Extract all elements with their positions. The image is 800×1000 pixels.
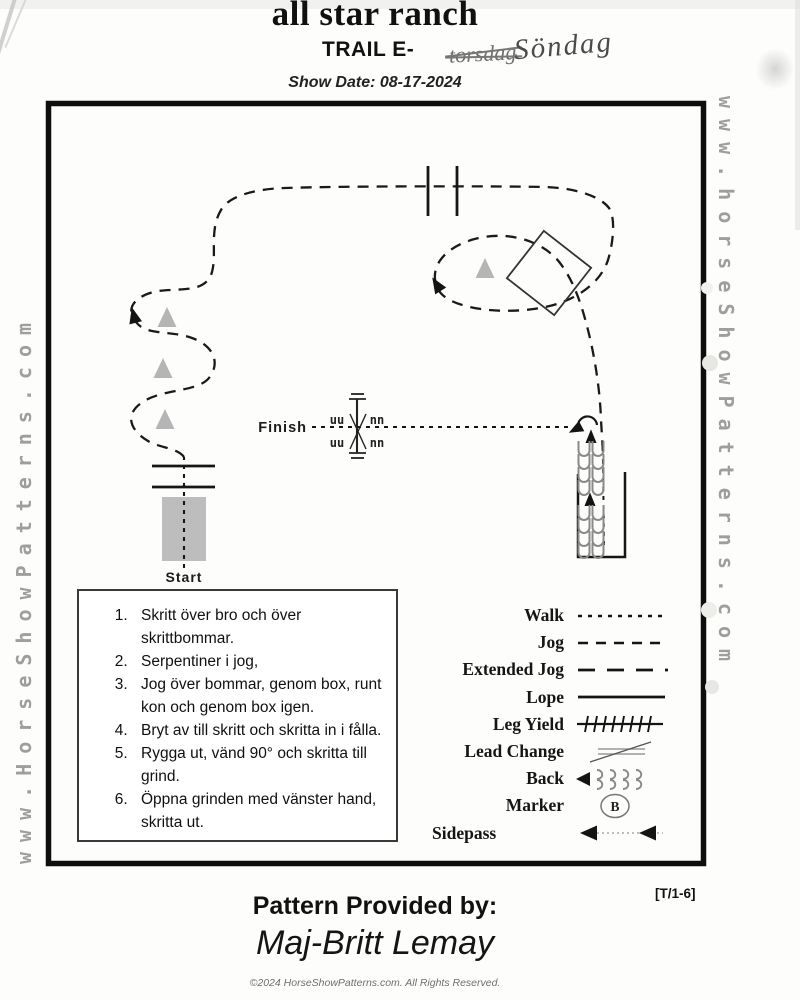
crosshatch-line-icon	[573, 713, 673, 735]
instructions-box: Skritt över bro och över skrittbommar. S…	[77, 589, 398, 842]
instruction-item: Bryt av till skritt och skritta in i fål…	[132, 719, 385, 742]
slash-over-lines-icon	[573, 741, 673, 763]
back-hoofprints	[579, 429, 604, 558]
gate-hoofmarks: nn	[370, 413, 384, 427]
instruction-item: Skritt över bro och över skrittbommar.	[132, 604, 385, 650]
direction-arrow	[427, 274, 447, 294]
legend-row-sidepass: Sidepass	[432, 820, 682, 847]
pattern-sheet: all star ranch TRAIL E- torsdag Söndag S…	[0, 0, 800, 1000]
provided-by-name: Maj-Britt Lemay	[256, 924, 494, 963]
box-obstacle	[507, 231, 591, 315]
legend-label: Back	[432, 768, 564, 789]
lettered-circle-icon: B	[573, 793, 673, 819]
direction-arrow	[126, 306, 142, 325]
solid-line-icon	[573, 686, 673, 708]
legend-row-jog: Jog	[432, 629, 682, 656]
instruction-item: Rygga ut, vänd 90° och skritta till grin…	[132, 742, 385, 788]
gate-hoofmarks: uu	[330, 436, 344, 450]
legend-label: Extended Jog	[432, 659, 564, 680]
legend-row-lead-change: Lead Change	[432, 738, 682, 765]
copyright: ©2024 HorseShowPatterns.com. All Rights …	[250, 977, 501, 989]
legend-row-leg-yield: Leg Yield	[432, 711, 682, 738]
instruction-item: Serpentiner i jog,	[132, 650, 385, 673]
course-diagram: uu nn uu nn Start Finish	[0, 0, 800, 1000]
legend-label: Sidepass	[432, 823, 496, 844]
marker-letter: B	[610, 799, 619, 814]
pattern-code: [T/1-6]	[655, 886, 696, 901]
legend-label: Jog	[432, 632, 564, 653]
instruction-list: Skritt över bro och över skrittbommar. S…	[79, 604, 386, 834]
legend-row-lope: Lope	[432, 684, 682, 711]
extended-jog-dashes-icon	[573, 659, 673, 681]
provided-by-label: Pattern Provided by:	[253, 892, 498, 921]
legend-label: Walk	[432, 605, 564, 626]
jog-poles	[428, 166, 457, 216]
legend-label: Marker	[432, 795, 564, 816]
legend-row-walk: Walk	[432, 602, 682, 629]
instruction-item: Jog över bommar, genom box, runt kon och…	[132, 673, 385, 719]
gate-hoofmarks: nn	[370, 436, 384, 450]
serpentine-cones	[154, 307, 177, 429]
start-label: Start	[166, 569, 203, 585]
legend-label: Lead Change	[432, 741, 564, 762]
gate-obstacle: uu nn uu nn	[330, 394, 384, 458]
gate-hoofmarks: uu	[330, 413, 344, 427]
legend-label: Leg Yield	[432, 714, 564, 735]
legend: Walk Jog Extended Jog Lope Leg Yield	[432, 602, 682, 847]
hoofprints-arrow-icon	[573, 768, 673, 790]
double-left-arrows-icon	[573, 822, 673, 844]
instruction-item: Öppna grinden med vänster hand, skritta …	[132, 788, 385, 834]
legend-row-extended-jog: Extended Jog	[432, 656, 682, 683]
loop-cone	[476, 258, 495, 278]
legend-label: Lope	[432, 687, 564, 708]
jog-dashes-icon	[573, 632, 673, 654]
legend-row-back: Back	[432, 765, 682, 792]
walk-dashes-icon	[573, 605, 673, 627]
legend-row-marker: Marker B	[432, 792, 682, 819]
direction-arrow	[566, 421, 584, 438]
finish-label: Finish	[258, 420, 307, 436]
